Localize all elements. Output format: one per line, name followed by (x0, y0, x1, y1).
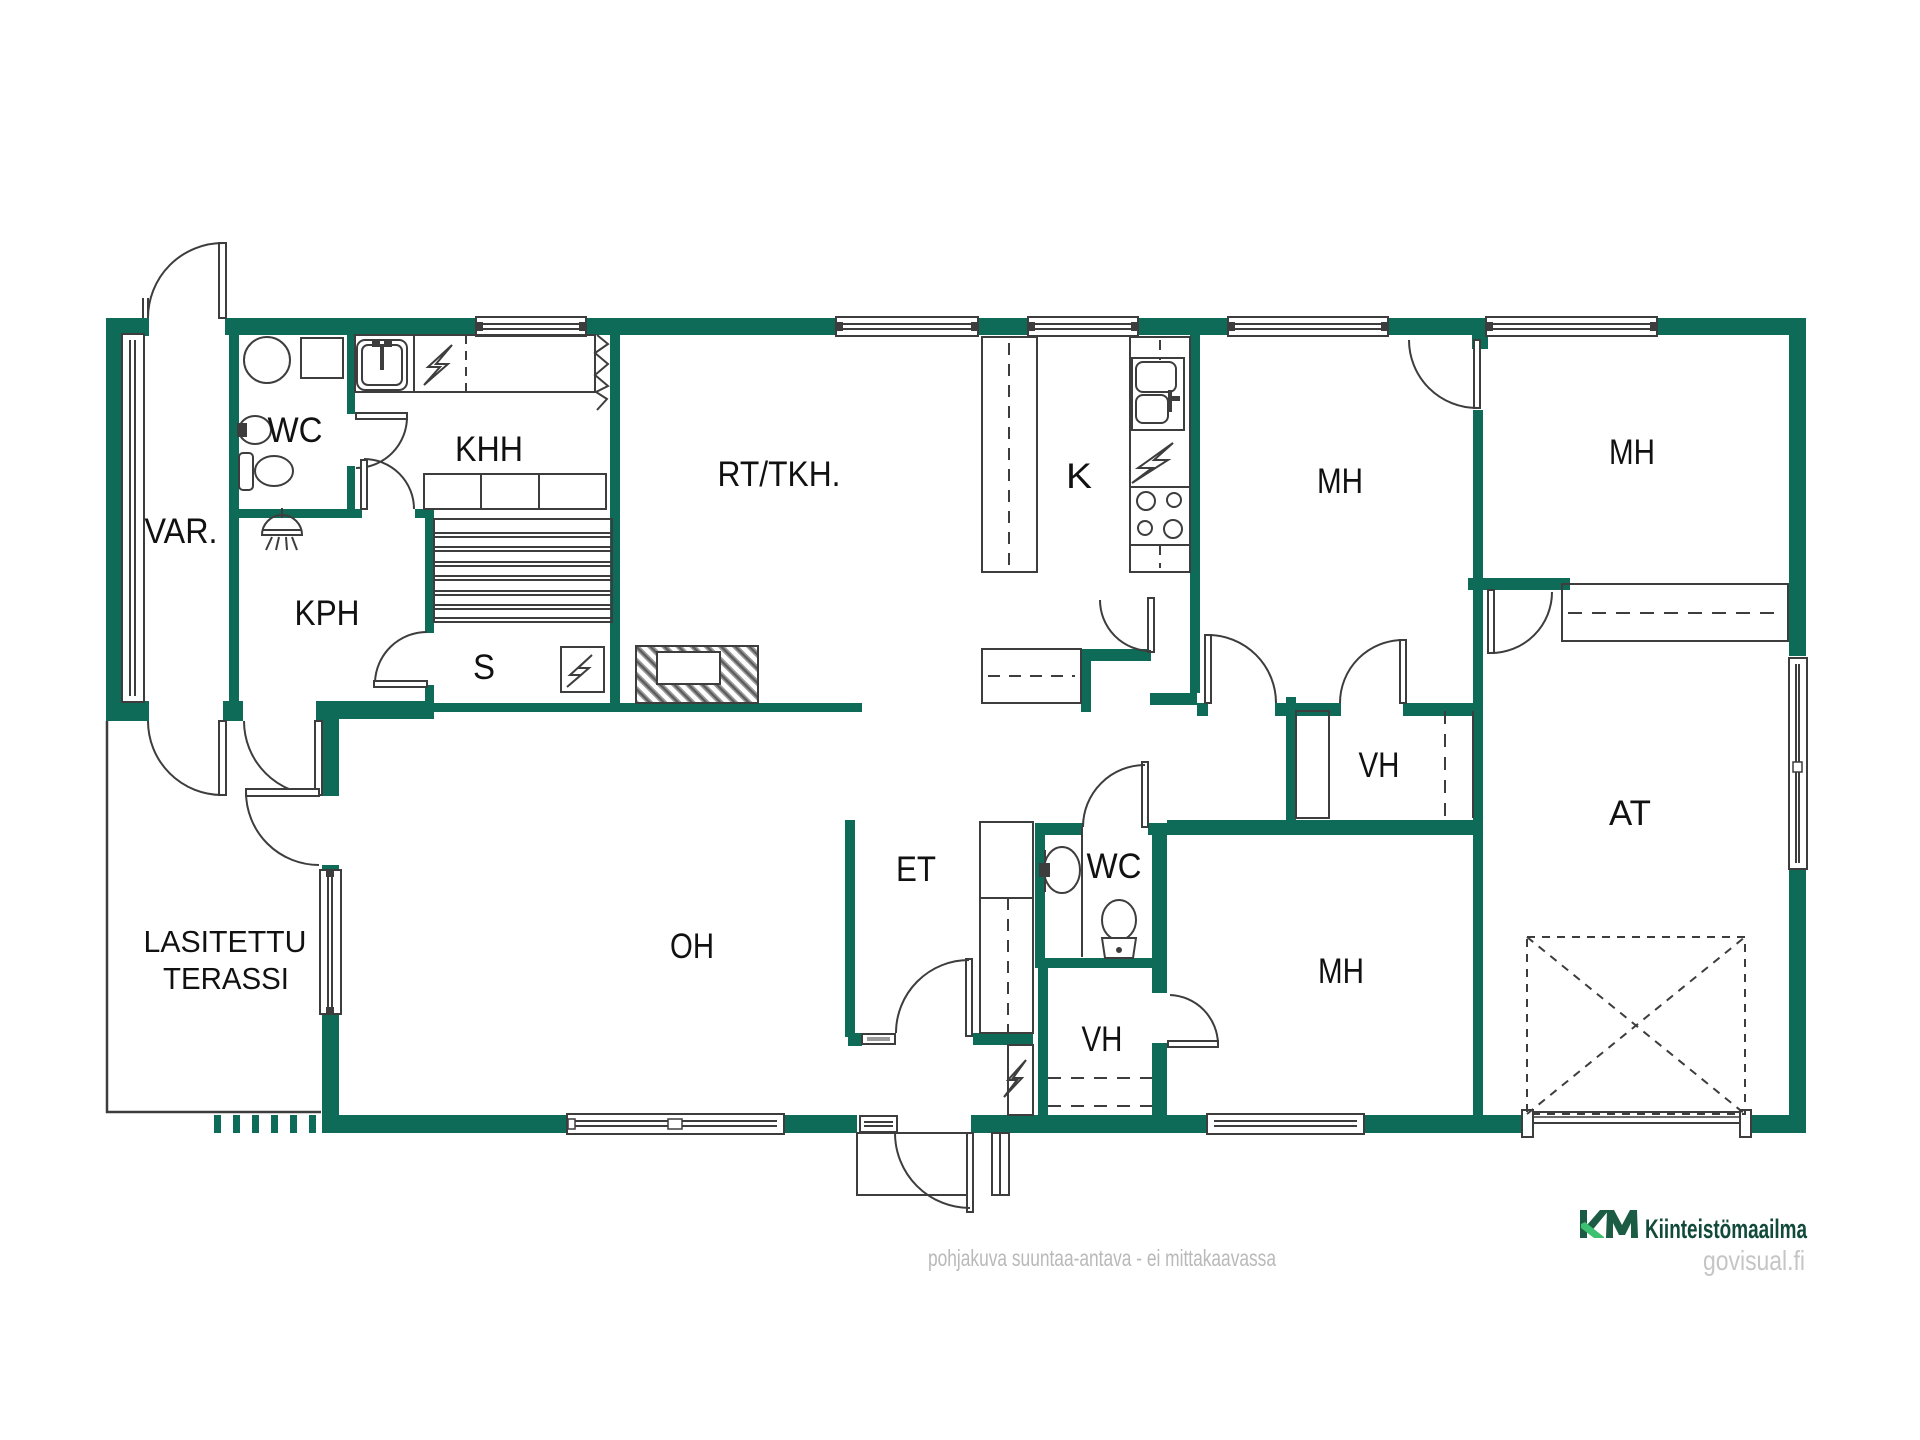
svg-text:MH: MH (1318, 952, 1364, 991)
svg-text:MH: MH (1317, 462, 1363, 501)
svg-text:AT: AT (1609, 794, 1651, 833)
svg-text:VAR.: VAR. (145, 512, 218, 551)
svg-text:pohjakuva suuntaa-antava - ei: pohjakuva suuntaa-antava - ei mittakaava… (928, 1245, 1276, 1271)
svg-text:WC: WC (268, 411, 323, 450)
svg-text:WC: WC (1087, 847, 1142, 886)
svg-text:RT/TKH.: RT/TKH. (718, 455, 841, 494)
svg-text:LASITETTU: LASITETTU (144, 924, 307, 959)
svg-text:ET: ET (896, 850, 936, 889)
svg-text:OH: OH (670, 927, 714, 966)
svg-text:govisual.fi: govisual.fi (1703, 1245, 1805, 1276)
svg-text:TERASSI: TERASSI (163, 961, 289, 996)
svg-text:KHH: KHH (455, 430, 523, 469)
svg-text:S: S (473, 648, 495, 687)
svg-text:KPH: KPH (295, 594, 360, 633)
svg-text:K: K (1066, 457, 1092, 496)
svg-text:Kiinteistömaailma: Kiinteistömaailma (1645, 1214, 1808, 1244)
svg-text:VH: VH (1082, 1020, 1123, 1059)
svg-text:VH: VH (1359, 746, 1400, 785)
svg-text:MH: MH (1609, 433, 1655, 472)
